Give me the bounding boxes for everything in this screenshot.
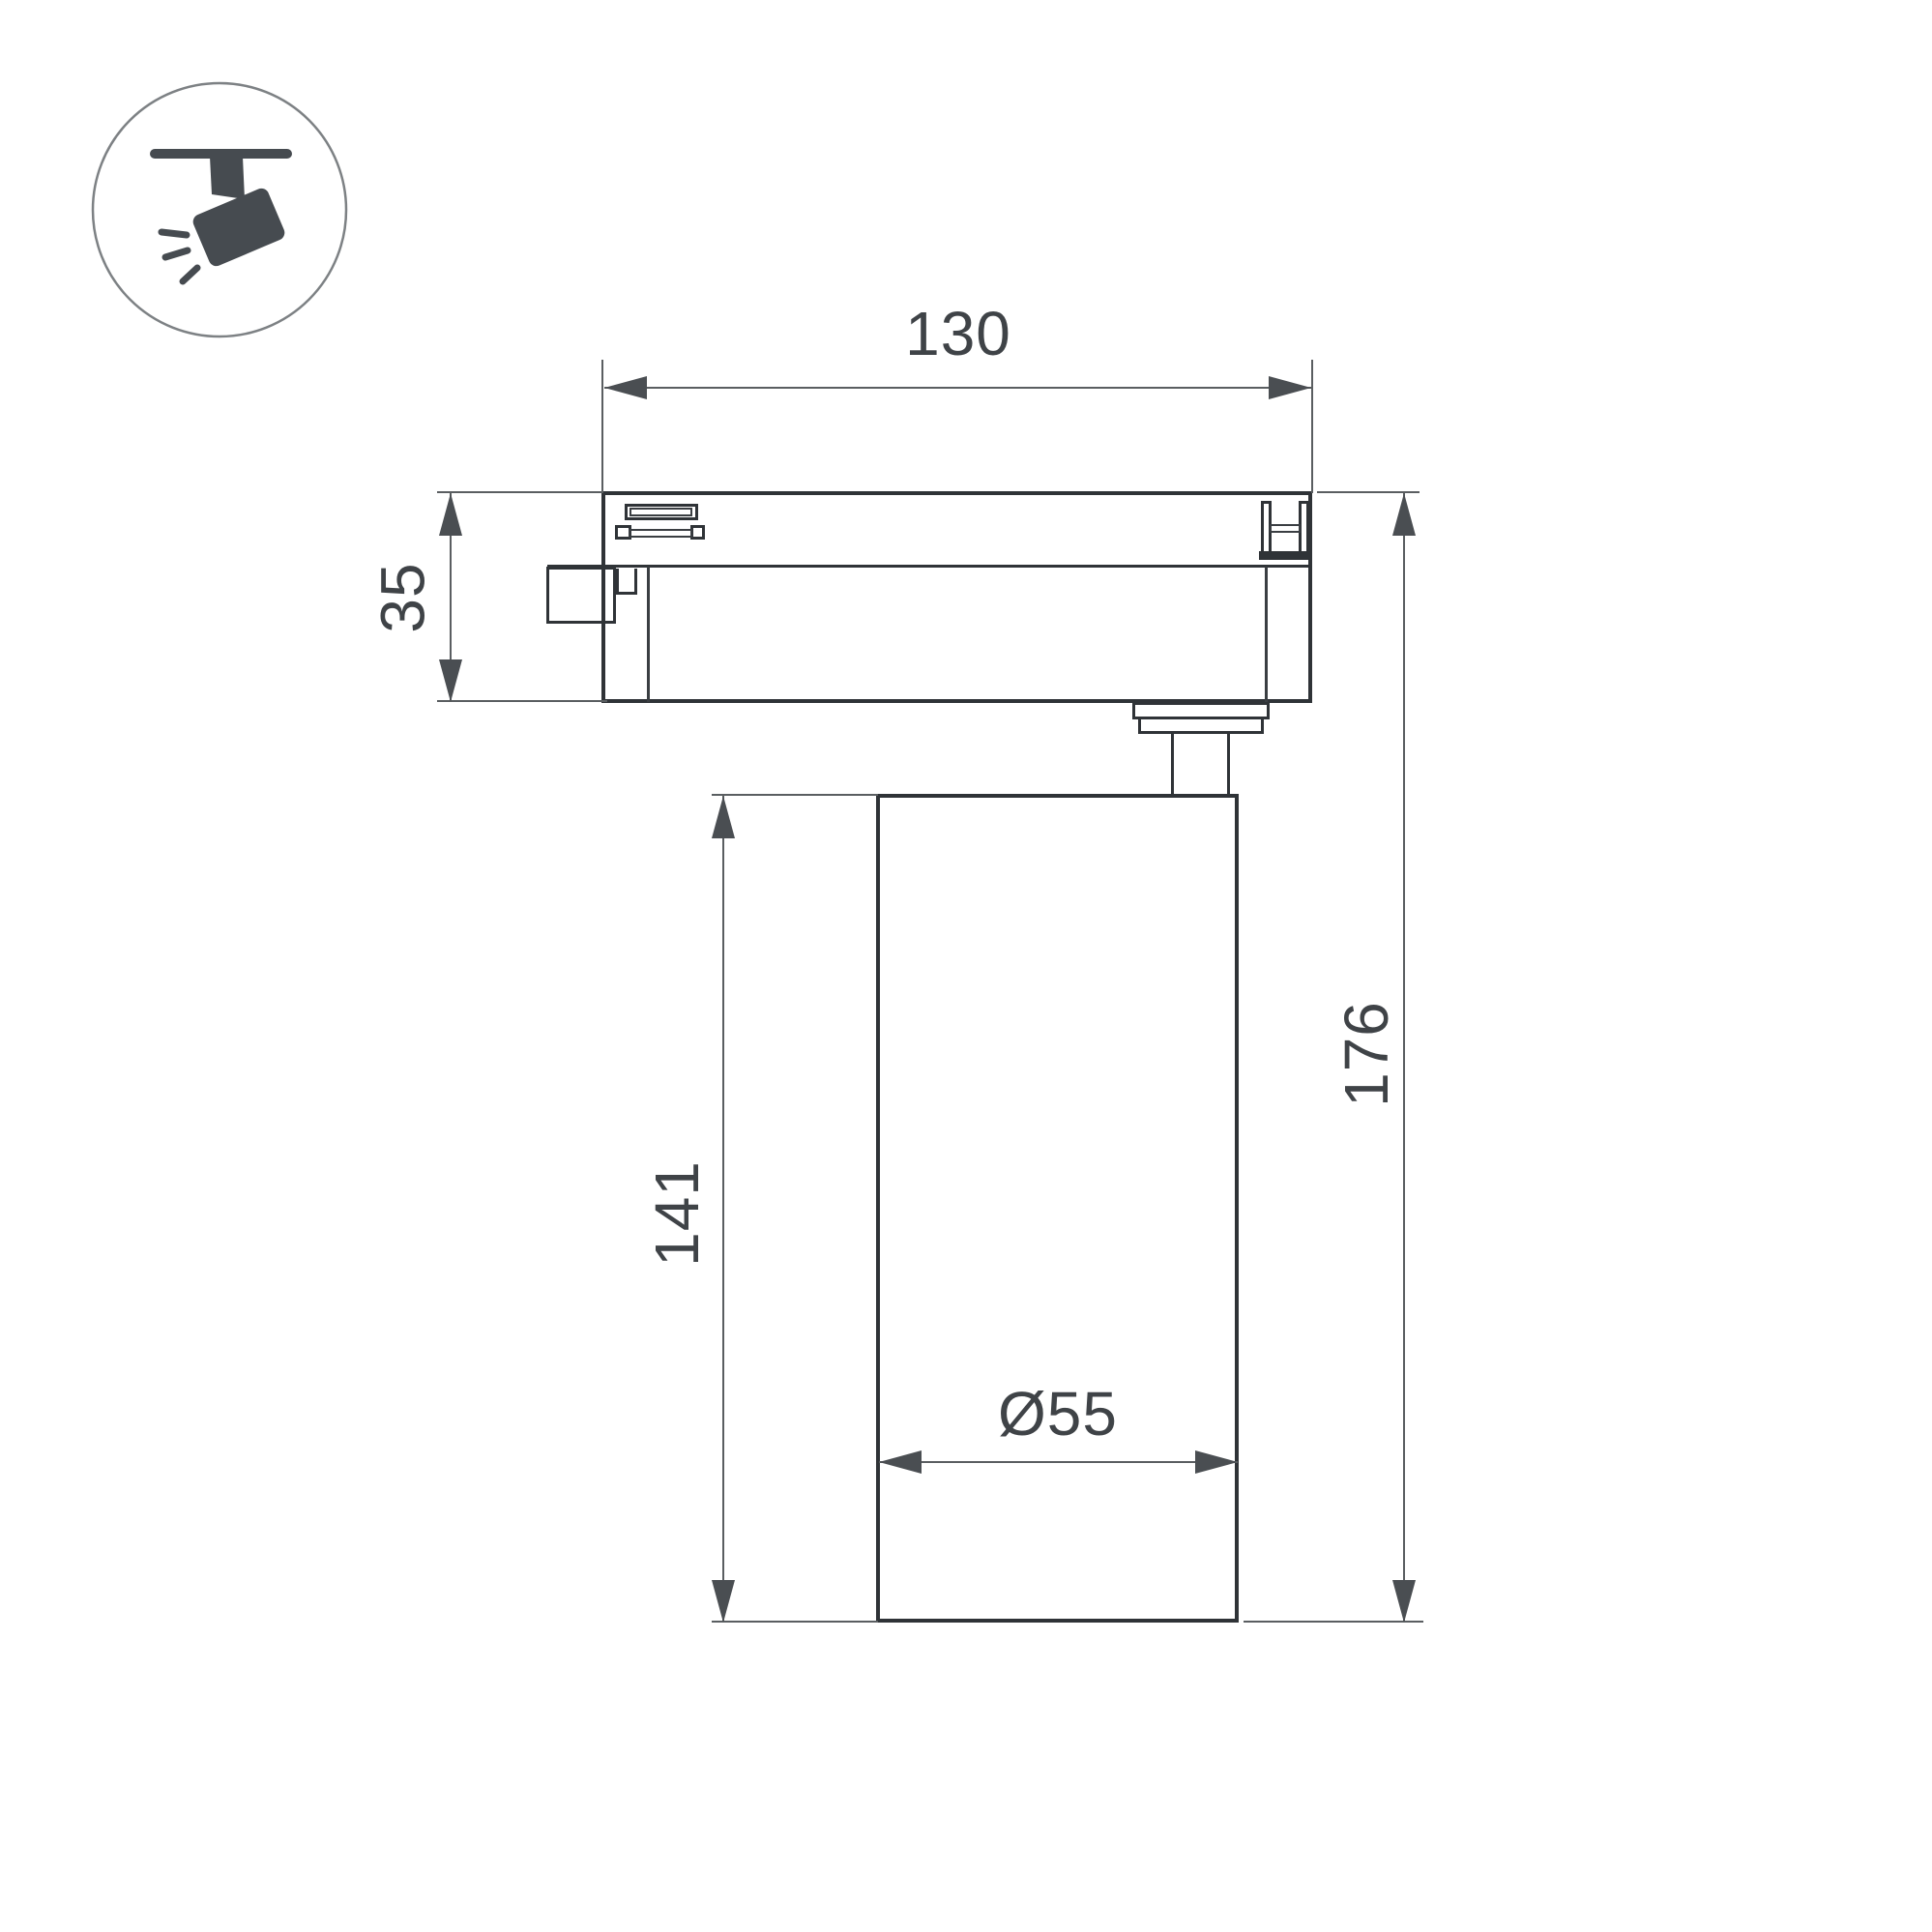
adapter-socket-bottom-bar (1259, 551, 1311, 560)
dim-55-line (879, 1461, 1238, 1463)
dim-176-label: 176 (1270, 957, 1463, 1151)
dim-141-ext-top (712, 794, 878, 796)
dim-176-arrow-top (1392, 493, 1416, 536)
dim-141-label: 141 (580, 1117, 774, 1310)
dim-130-arrow-right (1269, 376, 1311, 399)
adapter-right-inner-line (1265, 567, 1268, 702)
dim-141-arrow-bottom (712, 1580, 735, 1623)
adapter-latch-lever (546, 567, 616, 624)
adapter-clip-lower-bar (629, 529, 692, 538)
dim-55-arrow-right (1195, 1450, 1238, 1474)
dim-130-text: 130 (905, 298, 1011, 369)
cylinder-left-edge (876, 794, 880, 1623)
dim-35-ext-bottom (437, 700, 607, 702)
dim-141-ext-bottom (712, 1621, 878, 1623)
adapter-left-inner-line (647, 567, 650, 702)
adapter-latch-step (616, 569, 637, 595)
dim-55-label: Ø55 (961, 1370, 1155, 1457)
dim-176-arrow-bottom (1392, 1580, 1416, 1623)
adapter-top-edge (603, 491, 1312, 495)
dim-35-label: 35 (307, 501, 500, 694)
dim-141-arrow-top (712, 796, 735, 838)
dim-141-text: 141 (641, 1160, 713, 1267)
adapter-clip-lower-right-square (690, 525, 705, 540)
dim-130-ext-right (1311, 360, 1313, 493)
cylinder-bottom-edge (878, 1619, 1239, 1623)
dim-176-text: 176 (1331, 1001, 1402, 1107)
dim-130-line (604, 387, 1311, 389)
icon-mount-stem (210, 157, 245, 199)
adapter-socket-crossbar (1270, 524, 1301, 533)
adapter-clip-upper-inner (629, 508, 692, 516)
dim-130-label: 130 (862, 290, 1055, 377)
technical-drawing-canvas: 130 35 141 176 Ø55 (0, 0, 1932, 1932)
adapter-mid-edge (547, 565, 1312, 568)
track-spotlight-icon (39, 39, 406, 406)
dim-35-text: 35 (367, 562, 439, 632)
dim-55-arrow-left (879, 1450, 922, 1474)
track-spotlight-icon-svg (39, 39, 406, 406)
cylinder-top-edge (878, 794, 1239, 798)
dim-130-arrow-left (604, 376, 647, 399)
dim-130-ext-left (601, 360, 603, 493)
dim-55-text: Ø55 (998, 1378, 1118, 1449)
cylinder-right-edge (1235, 794, 1239, 1623)
joint-stem (1171, 731, 1230, 797)
